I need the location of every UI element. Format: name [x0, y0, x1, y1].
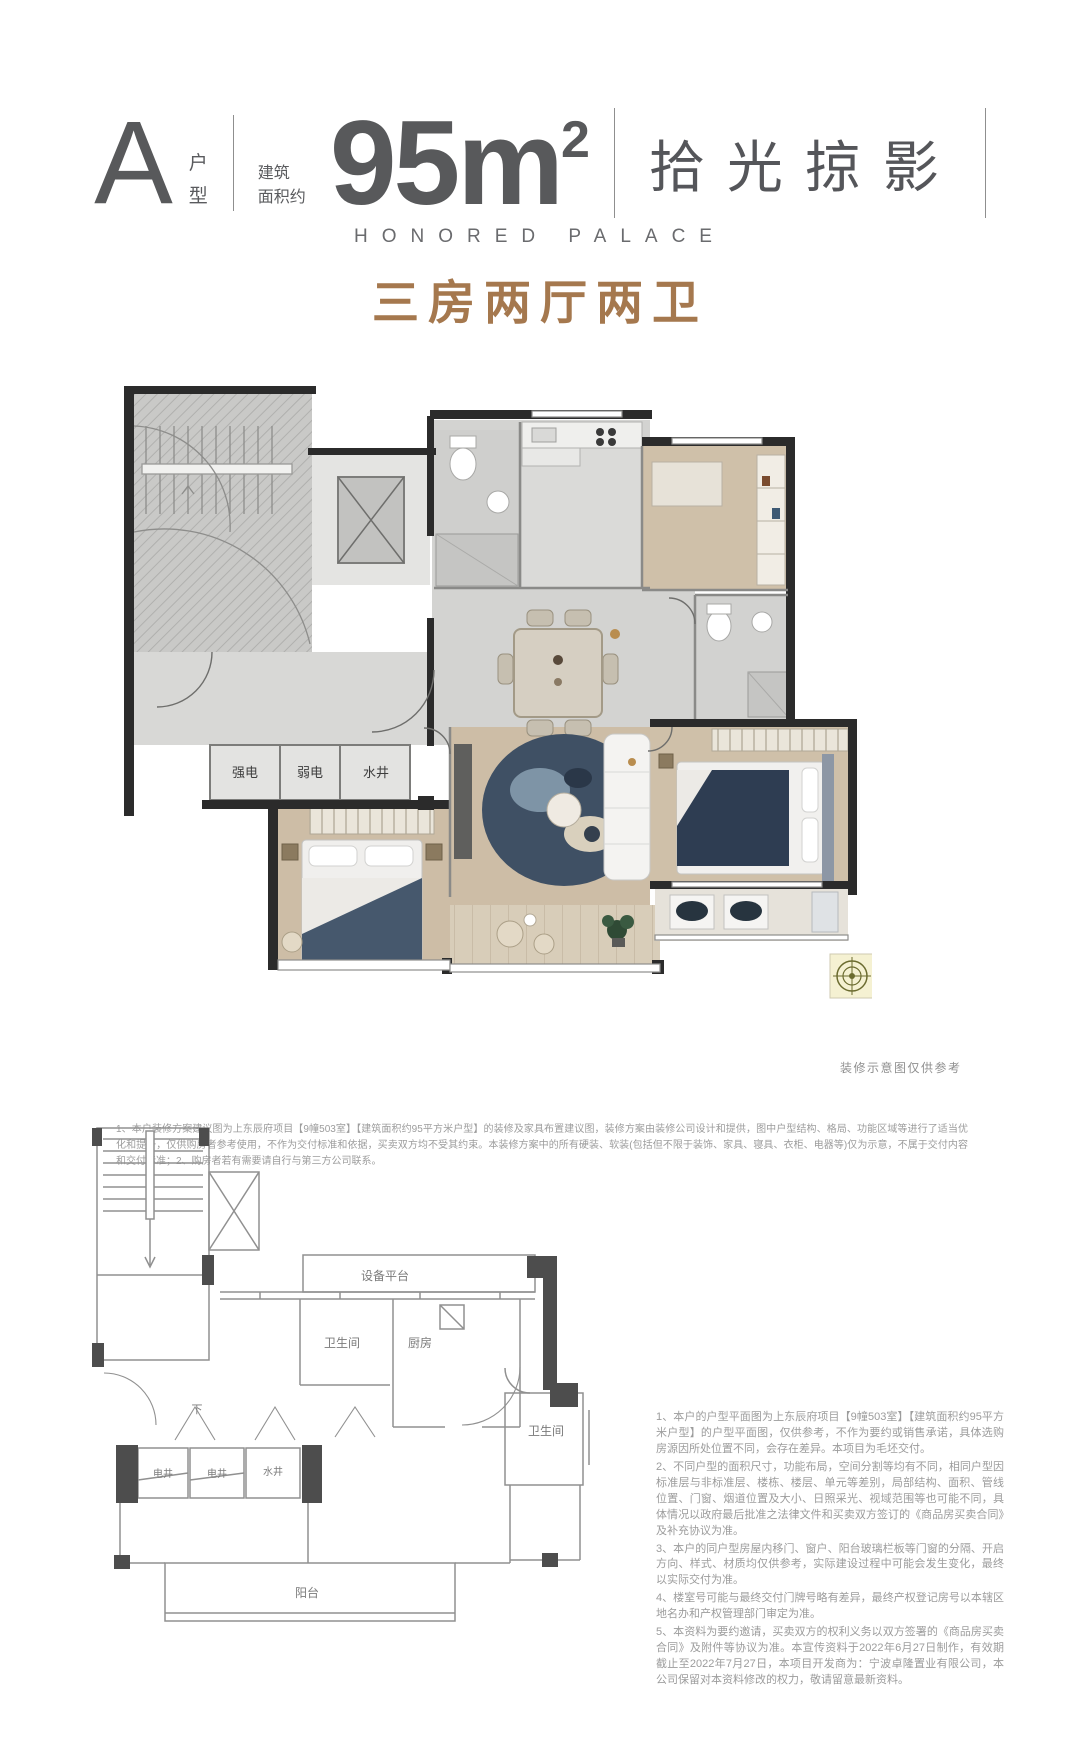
- small-floor-plan: 设备平台 卫生间 厨房 卫生间 电井 电井 水井 下 阳台: [90, 1115, 630, 1635]
- unit-type-char-1: 户: [189, 148, 209, 175]
- bathroom-left-label: 卫生间: [324, 1336, 360, 1350]
- corridor-tile: [650, 590, 695, 723]
- nightstand: [426, 844, 442, 860]
- armchair: [282, 932, 302, 952]
- small-plan-doors: [104, 1367, 520, 1440]
- rattan-chair: [497, 921, 523, 947]
- study-desk: [652, 462, 722, 506]
- master-wardrobe: [712, 729, 848, 751]
- header-divider-3: [985, 108, 986, 218]
- strong-power-label: 强电: [232, 765, 258, 780]
- unit-type-label: 户 型: [189, 148, 209, 222]
- legal-note-5: 5、本资料为要约邀请，买卖双方的权利义务以双方签署的《商品房买卖合同》及附件等协…: [656, 1625, 1004, 1689]
- nightstand: [282, 844, 298, 860]
- legal-notes: 1、本户的户型平面图为上东辰府项目【9幢503室】【建筑面积约95平方米户型】的…: [656, 1410, 1004, 1691]
- compass-icon: [830, 954, 872, 998]
- project-title-en: HONORED PALACE: [0, 226, 1080, 248]
- shaft-3-label: 水井: [263, 1465, 283, 1478]
- plan-reference-note: 装修示意图仅供参考: [840, 1059, 962, 1076]
- legal-note-3: 3、本户的同户型房屋内移门、窗户、阳台玻璃栏板等门窗的分隔、开启方向、样式、材质…: [656, 1542, 1004, 1590]
- area-prefix-line-1: 建筑: [258, 162, 306, 186]
- plant-box: [676, 901, 708, 921]
- area-prefix-line-2: 面积约: [258, 186, 306, 210]
- legal-note-4: 4、楼室号可能与最终交付门牌号略有差异，最终产权登记房号以本辖区地名办和产权管理…: [656, 1591, 1004, 1623]
- shaft-1-label: 电井: [153, 1467, 173, 1480]
- elevator: [338, 477, 404, 563]
- floor-lamp-icon: [628, 758, 636, 766]
- small-plan-living-balcony: [120, 1485, 580, 1621]
- area-number: 95m: [330, 112, 561, 214]
- header-divider-2: [614, 108, 615, 218]
- header-divider-1: [233, 115, 234, 211]
- artwork: [812, 892, 838, 932]
- coffee-table: [547, 793, 581, 827]
- small-plan-elevator: [209, 1172, 259, 1250]
- bathroom-right-label: 卫生间: [528, 1424, 564, 1438]
- kitchen-label: 厨房: [408, 1335, 432, 1350]
- wardrobe: [310, 808, 434, 834]
- shaft-2-label: 电井: [207, 1467, 227, 1480]
- unit-type-char-2: 型: [189, 181, 209, 208]
- pendant-lamp-icon: [610, 629, 620, 639]
- unit-type-letter: A: [94, 104, 173, 222]
- stair-down-label: 下: [192, 1404, 203, 1416]
- legal-note-1: 1、本户的户型平面图为上东辰府项目【9幢503室】【建筑面积约95平方米户型】的…: [656, 1410, 1004, 1458]
- project-title-cn: 拾光掠影: [639, 123, 961, 204]
- platform-label: 设备平台: [361, 1268, 409, 1283]
- balcony-label: 阳台: [295, 1585, 319, 1600]
- small-plan-labels: 设备平台 卫生间 厨房 卫生间 电井 电井 水井 下 阳台: [153, 1268, 564, 1600]
- nightstand: [659, 754, 673, 768]
- area-value: 95m2: [330, 112, 590, 214]
- plant-box: [730, 901, 762, 921]
- headboard: [822, 754, 834, 882]
- terrace: [670, 892, 838, 932]
- layout-type-title: 三房两厅两卫: [0, 264, 1080, 333]
- weak-power-label: 弱电: [297, 765, 323, 780]
- small-plan-stairwell: [97, 1128, 209, 1360]
- balcony-deck: [450, 905, 660, 971]
- rattan-chair: [534, 934, 554, 954]
- tv-console: [454, 744, 472, 859]
- sofa: [604, 734, 650, 880]
- flyer-page: A 户 型 建筑 面积约 95m2 拾光掠影 HONORED PALACE 三房…: [0, 0, 1080, 1752]
- water-shaft-label: 水井: [363, 765, 389, 780]
- area-prefix: 建筑 面积约: [258, 162, 306, 222]
- area-exponent: 2: [561, 118, 590, 162]
- legal-note-2: 2、不同户型的面积尺寸，功能布局，空间分割等均有不同，相同户型因标准层与非标准层…: [656, 1460, 1004, 1540]
- main-floor-plan: 强电 弱电 水井: [112, 382, 872, 1002]
- header: A 户 型 建筑 面积约 95m2 拾光掠影: [0, 104, 1080, 222]
